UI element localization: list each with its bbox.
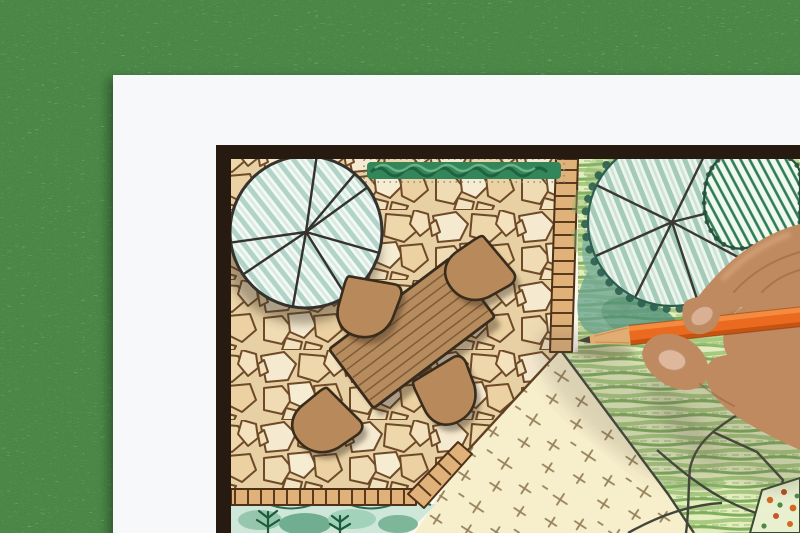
brick-edging-horizontal (231, 489, 416, 505)
brick-edging-vertical (550, 159, 578, 352)
planting-bed (231, 502, 436, 533)
hedge-strip (364, 159, 564, 182)
pencil-tip-shadow (574, 345, 634, 359)
photo-stage (0, 0, 800, 533)
